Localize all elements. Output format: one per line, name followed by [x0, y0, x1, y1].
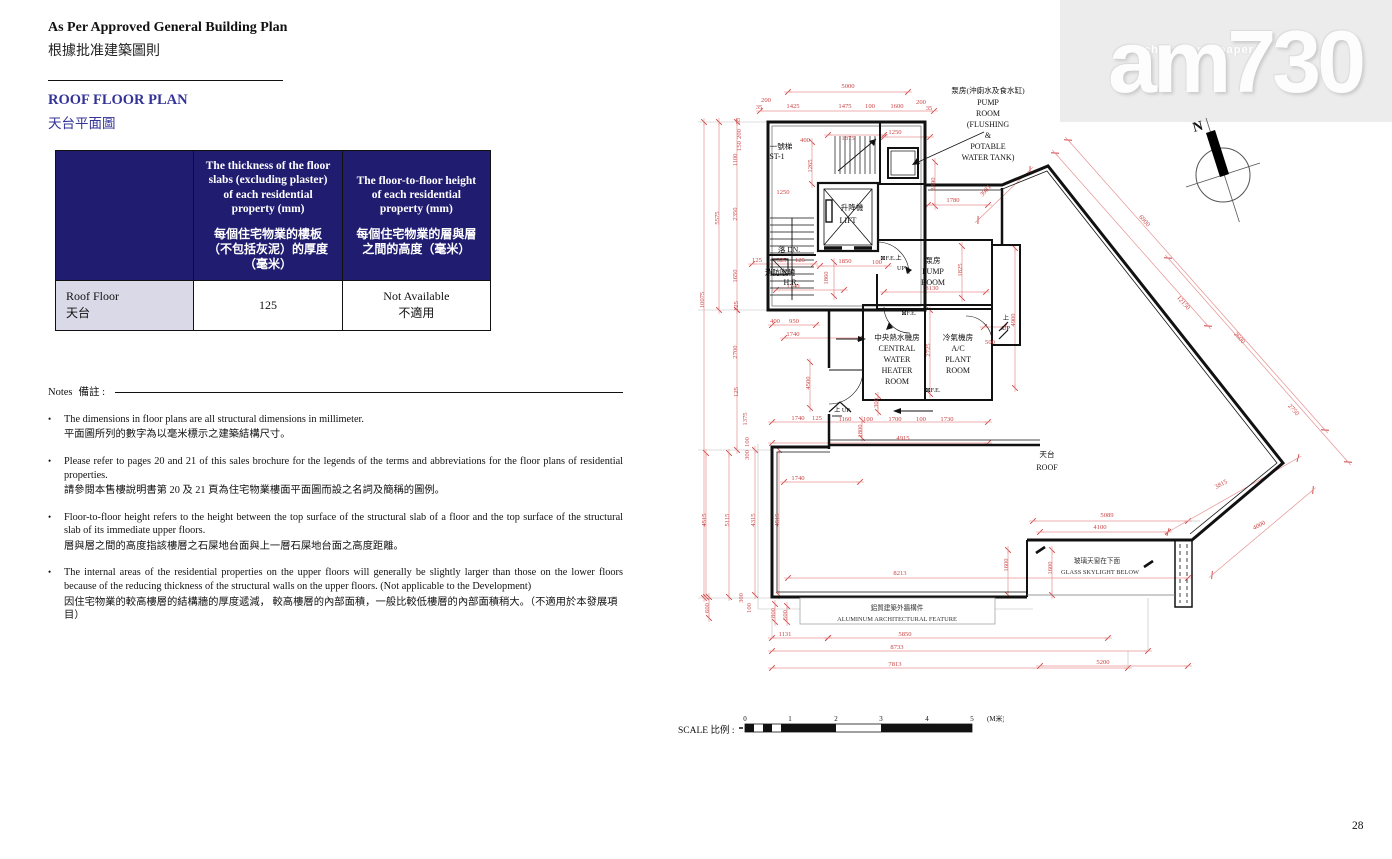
thickness-value-cell: 125: [194, 280, 342, 330]
plan-dimension: 1475: [838, 103, 852, 110]
plan-dimension: 1325: [773, 257, 787, 264]
plan-dimension: 1425: [786, 103, 800, 110]
plan-label: 中央熱水機房: [874, 332, 920, 342]
plan-dimension: 200: [761, 97, 772, 104]
plan-dimension: 800: [770, 607, 777, 618]
plan-dimension: 400: [770, 318, 781, 325]
notes-rule: [115, 392, 623, 393]
plan-dimension: 1825: [957, 263, 964, 277]
note-3-en: Floor-to-floor height refers to the heig…: [64, 512, 623, 537]
plan-label: 上: [1003, 314, 1009, 322]
plan-dimension: 1600: [890, 103, 904, 110]
plan-dimension: 950: [789, 318, 800, 325]
plan-label: PUMP: [922, 267, 944, 276]
plan-dimension: 3815: [1214, 478, 1230, 491]
plan-dimension: 125: [812, 415, 823, 422]
plan-label: 泵房(沖廁水及食水缸): [951, 85, 1025, 95]
plan-dimension: 1875: [841, 135, 855, 142]
note-item: • Floor-to-floor height refers to the he…: [48, 511, 623, 554]
plan-dimension: 1100: [732, 153, 739, 167]
plan-label: 上 UP: [834, 406, 850, 414]
note-1-zh: 平面圖所列的數字為以毫米標示之建築結構尺寸。: [64, 428, 623, 442]
scale-tick-4: 4: [926, 715, 930, 723]
notes-section: Notes 備註 : • The dimensions in floor pla…: [48, 386, 623, 623]
header-rule: [48, 80, 283, 81]
plan-dimension: 2700: [732, 345, 739, 359]
plan-dimension: 5200: [1096, 659, 1110, 666]
plan-label: ROOM: [976, 109, 1000, 118]
col-header-thickness-en: The thickness of the floor slabs (exclud…: [206, 160, 331, 215]
plan-dimension: 1131: [779, 631, 792, 638]
plan-label: 泵房: [925, 255, 940, 265]
plan-dimension: 1250: [888, 129, 902, 136]
plan-label: ⊠F.E.: [925, 387, 940, 394]
notes-heading: Notes 備註 :: [48, 386, 623, 400]
plan-dimension: 150: [736, 140, 743, 151]
plan-label: 天台: [1039, 449, 1055, 459]
plan-dimension: 100: [916, 416, 927, 423]
plan-label: &: [985, 131, 992, 140]
row-label-cell: Roof Floor 天台: [56, 280, 194, 330]
plan-dimension: 600: [704, 602, 711, 613]
plan-label: CENTRAL: [879, 344, 916, 353]
section-title: ROOF FLOOR PLAN 天台平面圖: [48, 92, 188, 132]
plan-dimension: 1265: [807, 159, 814, 173]
plan-dimension: 35: [735, 117, 742, 124]
scale-bar-graphic: 0 1 2 3 4 5 (M米): [739, 712, 1004, 736]
note-4-en: The internal areas of the residential pr…: [64, 567, 623, 592]
plan-dimension: 5850: [898, 631, 912, 638]
plan-dimension: 300: [873, 397, 880, 408]
col-header-thickness: The thickness of the floor slabs (exclud…: [194, 151, 342, 281]
plan-dimension: 100: [744, 436, 751, 447]
height-value-en: Not Available: [344, 289, 489, 304]
plan-dimension: 2725: [925, 343, 932, 357]
plan-dimension: 4515: [701, 513, 708, 527]
plan-label: 冷氣機房: [943, 332, 973, 342]
note-4-zh: 因住宅物業的較高樓層的結構牆的厚度遞減， 較高樓層的內部面積，一般比較低樓層的內…: [64, 596, 623, 623]
note-item: • Please refer to pages 20 and 21 of thi…: [48, 455, 623, 498]
plan-dimension: 1740: [791, 415, 805, 422]
scale-tick-5: 5: [971, 715, 975, 723]
plan-label: LIFT: [840, 216, 857, 225]
plan-label: 落 DN.: [778, 244, 800, 254]
section-title-en: ROOF FLOOR PLAN: [48, 92, 188, 109]
scale-bar: SCALE 比例 : 0 1 2 3 4 5 (M米): [678, 712, 1004, 736]
plan-dimension: 4500: [805, 376, 812, 390]
plan-label: HEATER: [882, 366, 913, 375]
plan-label: 一號梯: [770, 141, 793, 151]
plan-label: UP: [1002, 325, 1010, 332]
col-header-height-en: The floor-to-floor height of each reside…: [357, 175, 476, 216]
plan-label: POTABLE: [970, 142, 1005, 151]
plan-dimension: 1375: [742, 412, 749, 426]
notes-label-zh: 備註 :: [79, 386, 106, 400]
plan-label: ROOM: [885, 377, 909, 386]
plan-label: WATER TANK): [962, 153, 1015, 162]
plan-dimension: 12150: [1175, 295, 1192, 312]
plan-label: ROOF: [1036, 463, 1058, 472]
plan-label: 升降機: [841, 202, 864, 212]
plan-label: UP: [897, 265, 905, 272]
plan-dimension: 500: [782, 609, 789, 620]
plan-dimension: 1740: [791, 475, 805, 482]
plan-dimension: 2750: [1286, 403, 1300, 418]
page-number: 28: [1352, 820, 1364, 832]
plan-dimension: 2350: [732, 207, 739, 221]
plan-dimension: 35: [756, 104, 763, 111]
plan-dimension: 125: [752, 257, 763, 264]
plan-dimension: 1650: [732, 269, 739, 283]
plan-dimension: 4900: [1010, 313, 1017, 327]
plan-dimension: 8733: [890, 644, 904, 651]
scale-unit: (M米): [987, 714, 1004, 723]
roof-floor-plan: 5000200351425147510016002003535200150110…: [688, 78, 1392, 750]
plan-label: (FLUSHING: [967, 120, 1009, 129]
row-label-zh: 天台: [66, 304, 183, 321]
plan-label: ROOM: [921, 278, 945, 287]
note-2-en: Please refer to pages 20 and 21 of this …: [64, 456, 623, 481]
plan-dimension: 1800: [857, 424, 864, 438]
plan-dimension: 1860: [823, 271, 830, 285]
plan-dimension: 5000: [841, 83, 855, 90]
note-item: • The dimensions in floor plans are all …: [48, 413, 623, 442]
plan-dimension: 400: [800, 137, 811, 144]
plan-dimension: 1780: [946, 197, 960, 204]
plan-dimension: 125: [733, 386, 740, 397]
plan-label: ⊠F.E.上: [880, 254, 901, 262]
plan-dimension: 4515: [774, 513, 781, 527]
plan-dimension: 1160: [839, 416, 853, 423]
plan-dimension: 1600: [1003, 558, 1010, 572]
plan-dimension: 3390: [930, 177, 937, 191]
plan-dimension: 300: [744, 449, 751, 460]
col-header-height-zh: 每個住宅物業的層與層之間的高度（毫米）: [353, 227, 480, 257]
plan-dimension: 4100: [1093, 524, 1107, 531]
plan-dimension: 8213: [893, 570, 907, 577]
plan-dimension: 1730: [940, 416, 954, 423]
col-header-height: The floor-to-floor height of each reside…: [342, 151, 490, 281]
plan-dimension: 500: [985, 339, 996, 346]
spec-table: The thickness of the floor slabs (exclud…: [55, 150, 491, 331]
plan-label: 鋁質建築外牆構件: [871, 603, 924, 612]
plan-label: PUMP: [977, 98, 999, 107]
note-3-zh: 層與層之間的高度指該樓層之石屎地台面與上一層石屎地台面之高度距離。: [64, 540, 623, 554]
scale-tick-0: 0: [744, 715, 748, 723]
section-title-zh: 天台平面圖: [48, 112, 188, 132]
plan-dimension: 125: [733, 300, 740, 311]
note-1-en: The dimensions in floor plans are all st…: [64, 414, 364, 425]
plan-label: H.R.: [783, 278, 798, 287]
page-title-zh: 根據批准建築圖則: [48, 40, 468, 60]
plan-dimension: 200: [736, 128, 743, 139]
height-value-zh: 不適用: [344, 304, 489, 321]
plan-label: 玻璃天窗在下面: [1074, 556, 1121, 565]
plan-label: ⊠F.E.: [901, 310, 916, 317]
plan-dimension: 1850: [838, 258, 852, 265]
note-2-zh: 請參閱本售樓說明書第 20 及 21 頁為住宅物業樓面平面圖而設之名詞及簡稱的圖…: [64, 484, 623, 498]
plan-dimension: 1600: [1047, 561, 1054, 575]
plan-dimension: 125: [795, 257, 806, 264]
scale-tick-1: 1: [789, 715, 793, 723]
plan-dimension: 1250: [776, 189, 790, 196]
plan-label: WATER: [884, 355, 911, 364]
plan-label: ALUMINUM ARCHITECTURAL FEATURE: [837, 616, 957, 623]
plan-dimension: 100: [863, 416, 874, 423]
scale-label: SCALE 比例 :: [678, 722, 734, 736]
plan-label: GLASS SKYLIGHT BELOW: [1061, 569, 1140, 576]
plan-dimension: 100: [746, 602, 753, 613]
plan-dimension: 35: [926, 105, 933, 112]
plan-dimension: 100: [865, 103, 876, 110]
plan-label: PLANT: [945, 355, 971, 364]
plan-dimension: 5115: [724, 513, 731, 527]
spec-table-corner-cell: [56, 151, 194, 281]
page-title-en: As Per Approved General Building Plan: [48, 20, 468, 36]
scale-tick-2: 2: [835, 715, 839, 723]
plan-label: ST-1: [769, 152, 784, 161]
plan-dimension: 300: [738, 592, 745, 603]
plan-dimension: 5089: [1100, 512, 1114, 519]
plan-label: ROOM: [946, 366, 970, 375]
note-item: • The internal areas of the residential …: [48, 566, 623, 622]
table-row: Roof Floor 天台 125 Not Available 不適用: [56, 280, 491, 330]
height-value-cell: Not Available 不適用: [342, 280, 490, 330]
scale-tick-3: 3: [880, 715, 884, 723]
plan-dimension: 2600: [1232, 331, 1246, 346]
plan-walls: [768, 122, 1283, 607]
plan-dimension: 1740: [786, 331, 800, 338]
plan-dimension: 1700: [888, 416, 902, 423]
brochure-page: As Per Approved General Building Plan 根據…: [0, 0, 1392, 859]
plan-dimension: 7813: [888, 661, 902, 668]
row-label-en: Roof Floor: [66, 289, 183, 304]
plan-label: A/C: [951, 344, 964, 353]
plan-dimension: 4915: [896, 435, 910, 442]
notes-label-en: Notes: [48, 386, 73, 400]
plan-label: 消防喉轆: [765, 267, 796, 277]
plan-dimension: 5575: [714, 211, 721, 225]
plan-dimension: 4315: [750, 513, 757, 527]
page-header: As Per Approved General Building Plan 根據…: [48, 20, 468, 60]
col-header-thickness-zh: 每個住宅物業的樓板（不包括灰泥）的厚度（毫米）: [204, 227, 331, 272]
plan-dimension: 10075: [699, 291, 706, 308]
